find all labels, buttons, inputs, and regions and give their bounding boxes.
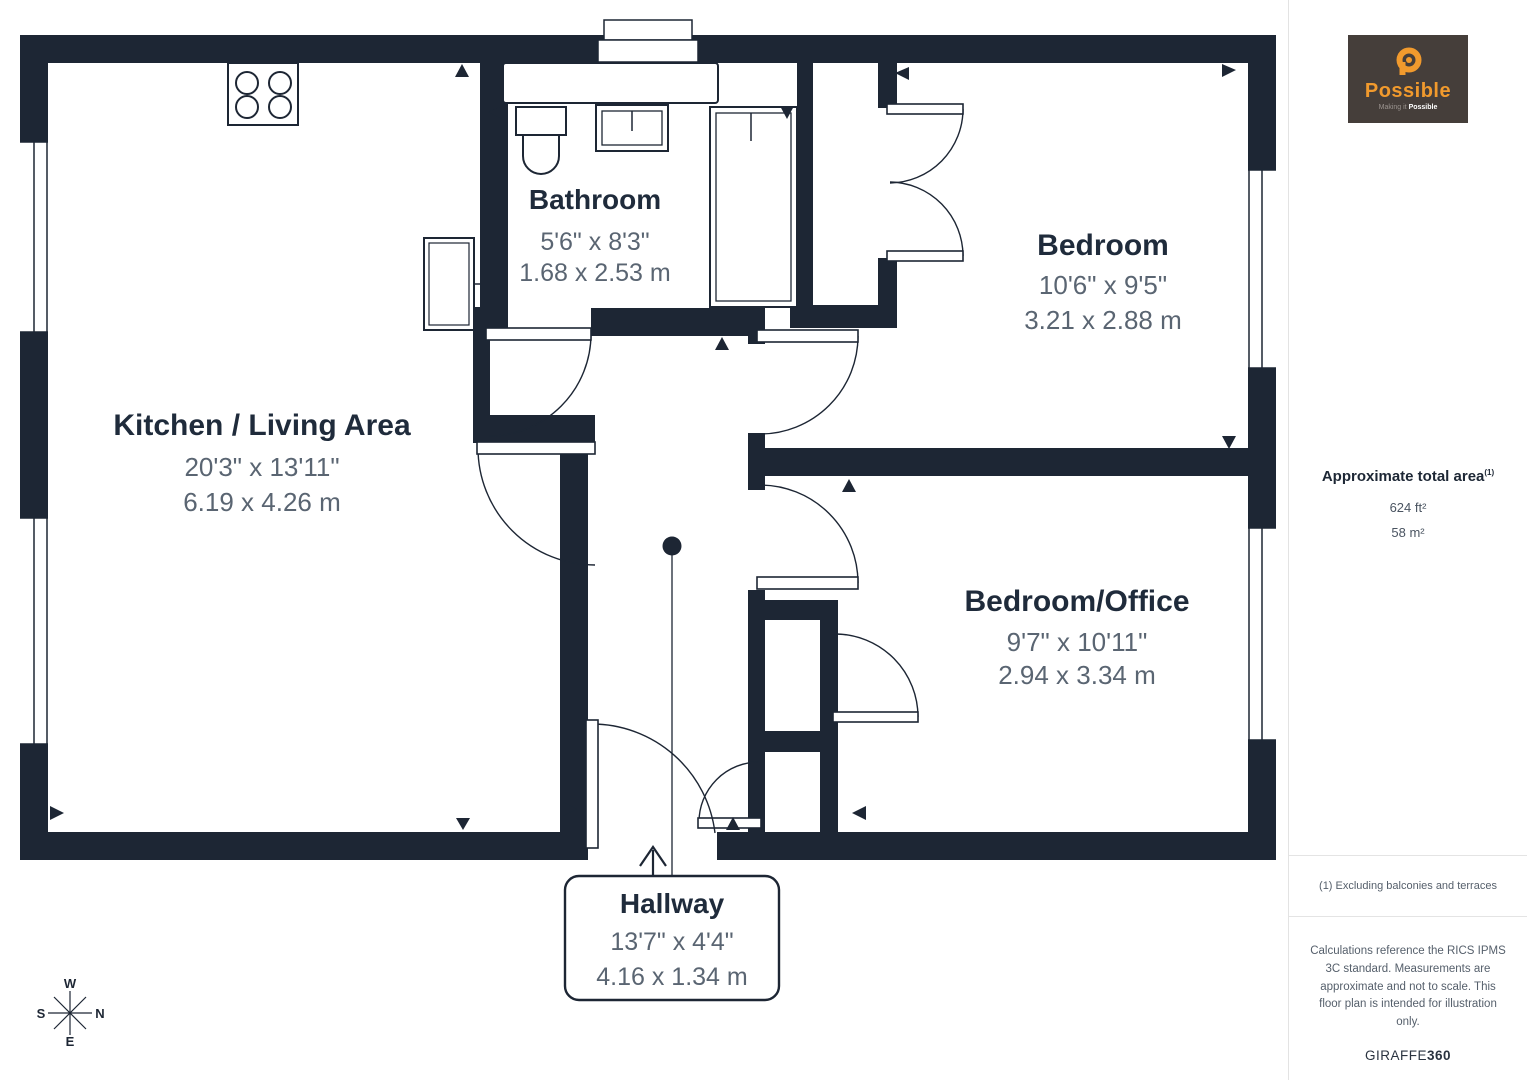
window-right-bottom — [1248, 528, 1276, 740]
bedroom-door — [757, 330, 858, 434]
agency-logo: Possible Making it Possible — [1348, 35, 1468, 123]
hallway-anchor-dot — [663, 537, 682, 556]
shower-cabinet-icon — [710, 107, 797, 307]
tagline-prefix: Making it — [1379, 104, 1409, 111]
room-label-hallway: Hallway — [620, 888, 725, 919]
compass-east: E — [66, 1034, 75, 1049]
total-area-metric: 58 m² — [1391, 525, 1424, 540]
brand-tagline: Making it Possible — [1379, 104, 1438, 111]
total-area-imperial: 624 ft² — [1390, 500, 1427, 515]
room-dim-imperial: 5'6" x 8'3" — [540, 228, 649, 256]
footnote: (1) Excluding balconies and terraces — [1289, 855, 1527, 917]
window-bathroom-top — [598, 20, 698, 62]
walls — [20, 35, 1276, 860]
logo-section: Possible Making it Possible — [1289, 0, 1527, 158]
room-dim-imperial: 10'6" x 9'5" — [1039, 270, 1167, 300]
room-dim-metric: 1.68 x 2.53 m — [519, 259, 670, 287]
storage-closet-door — [833, 634, 918, 722]
footnote-text: (1) Excluding balconies and terraces — [1319, 880, 1497, 892]
room-label-kitchen: Kitchen / Living Area — [113, 409, 411, 442]
brand-name: Possible — [1365, 81, 1451, 101]
total-area-title-text: Approximate total area — [1322, 468, 1485, 485]
bathtub-icon — [503, 63, 718, 103]
compass-south: S — [37, 1006, 46, 1021]
info-sidebar: Possible Making it Possible Approximate … — [1288, 0, 1527, 1080]
window-left-top — [20, 142, 48, 332]
hob-icon — [228, 63, 298, 125]
floorplan-canvas: Kitchen / Living Area 20'3" x 13'11" 6.1… — [0, 0, 1288, 1080]
bedroom-closet-doors — [887, 104, 963, 261]
room-label-bedroom-office: Bedroom/Office — [964, 585, 1189, 618]
room-dim-imperial: 9'7" x 10'11" — [1007, 627, 1148, 657]
room-dim-metric: 4.16 x 1.34 m — [596, 963, 747, 991]
room-dim-metric: 6.19 x 4.26 m — [183, 487, 341, 517]
room-label-bedroom: Bedroom — [1037, 229, 1169, 262]
radiator-icon — [424, 238, 481, 330]
disclaimer-section: Calculations reference the RICS IPMS 3C … — [1289, 917, 1527, 1080]
compass-rose — [48, 991, 92, 1035]
room-dim-imperial: 13'7" x 4'4" — [610, 928, 733, 956]
compass-north: N — [95, 1006, 104, 1021]
disclaimer-text: Calculations reference the RICS IPMS 3C … — [1310, 943, 1506, 1032]
window-right-top — [1248, 170, 1276, 368]
total-area-section: Approximate total area(1) 624 ft² 58 m² — [1289, 158, 1527, 855]
giraffe360-credit: GIRAFFE360 — [1365, 1048, 1451, 1063]
fixtures — [228, 63, 797, 330]
credit-regular: GIRAFFE — [1365, 1048, 1427, 1063]
room-dim-imperial: 20'3" x 13'11" — [184, 452, 339, 482]
room-label-bathroom: Bathroom — [529, 184, 661, 215]
room-dim-metric: 3.21 x 2.88 m — [1024, 305, 1182, 335]
total-area-title: Approximate total area(1) — [1322, 468, 1494, 485]
bedroom-office-door — [757, 485, 858, 589]
front-door — [586, 720, 715, 848]
sink-icon — [596, 105, 668, 151]
tagline-bold: Possible — [1409, 104, 1438, 111]
room-dim-metric: 2.94 x 3.34 m — [998, 660, 1156, 690]
possible-pin-icon — [1391, 47, 1425, 79]
window-left-bottom — [20, 518, 48, 744]
credit-bold: 360 — [1427, 1048, 1451, 1063]
compass-west: W — [64, 976, 77, 991]
total-area-footnote-ref: (1) — [1484, 468, 1494, 477]
toilet-icon — [516, 107, 566, 174]
scan-markers — [50, 64, 1236, 830]
